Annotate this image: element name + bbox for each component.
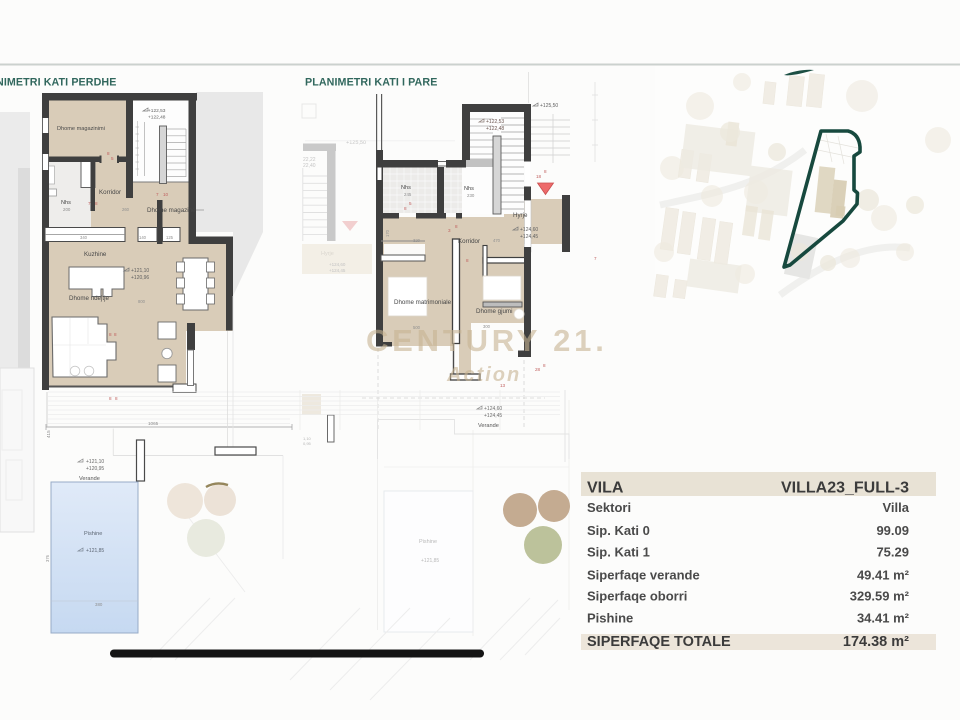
svg-text:+124,45: +124,45 [329, 268, 346, 273]
svg-text:Verande: Verande [79, 476, 100, 482]
svg-text:800: 800 [138, 299, 146, 304]
svg-text:+122,48: +122,48 [148, 115, 166, 121]
svg-text:+125,50: +125,50 [540, 103, 558, 109]
svg-text:+122,53: +122,53 [486, 119, 504, 125]
svg-text:Dhome magazinimi: Dhome magazinimi [57, 126, 105, 132]
svg-text:+124,60: +124,60 [520, 227, 538, 233]
svg-text:+122,48: +122,48 [486, 126, 504, 132]
svg-text:Verande: Verande [478, 423, 499, 429]
svg-text:320: 320 [413, 238, 421, 243]
svg-text:8: 8 [107, 151, 110, 156]
svg-text:5: 5 [409, 201, 412, 206]
svg-text:200: 200 [63, 207, 71, 212]
svg-text:Pishine: Pishine [587, 611, 633, 626]
svg-text:75.29: 75.29 [876, 545, 909, 560]
svg-text:+121,85: +121,85 [86, 548, 104, 554]
svg-text:Nhs: Nhs [464, 186, 474, 192]
svg-text:8: 8 [466, 258, 469, 263]
svg-text:376: 376 [45, 554, 50, 562]
svg-text:+120,96: +120,96 [131, 275, 149, 281]
svg-text:230: 230 [467, 193, 475, 198]
svg-text:Dhome ndejtje: Dhome ndejtje [69, 295, 109, 302]
svg-text:Nhs: Nhs [401, 185, 411, 191]
svg-text:Hyrje: Hyrje [513, 212, 528, 219]
svg-text:VILA: VILA [587, 480, 624, 497]
svg-text:Dhome matrimoniale: Dhome matrimoniale [394, 299, 452, 306]
svg-text:Kuzhine: Kuzhine [84, 251, 107, 258]
svg-text:470: 470 [493, 238, 501, 243]
svg-text:8: 8 [95, 201, 98, 206]
svg-text:Action: Action [446, 364, 521, 386]
svg-text:Sektori: Sektori [587, 500, 631, 515]
svg-text:+121,85: +121,85 [421, 558, 439, 564]
svg-text:Korridor: Korridor [99, 189, 121, 196]
svg-text:SIPERFAQE TOTALE: SIPERFAQE TOTALE [587, 634, 731, 650]
svg-text:Dhome magazinë: Dhome magazinë [147, 207, 196, 214]
svg-text:Siperfaqe oborri: Siperfaqe oborri [587, 589, 687, 604]
svg-text:49.41 m²: 49.41 m² [857, 568, 910, 583]
svg-text:+124,60: +124,60 [484, 406, 502, 412]
svg-text:Korridor: Korridor [458, 238, 480, 245]
svg-text:260: 260 [122, 207, 130, 212]
svg-text:5: 5 [111, 156, 114, 161]
svg-text:3: 3 [448, 228, 451, 233]
svg-text:415: 415 [46, 430, 51, 438]
svg-text:34.41 m²: 34.41 m² [857, 611, 910, 626]
svg-text:8: 8 [543, 363, 546, 368]
svg-text:+124,60: +124,60 [329, 262, 346, 267]
svg-text:22,40: 22,40 [303, 163, 316, 169]
svg-text:7: 7 [594, 256, 597, 261]
svg-text:CENTURY 21.: CENTURY 21. [366, 323, 608, 358]
svg-text:380: 380 [95, 602, 103, 607]
svg-text:Pishine: Pishine [84, 531, 102, 537]
svg-text:Sip. Kati 1: Sip. Kati 1 [587, 545, 650, 560]
svg-text:+122,53: +122,53 [148, 108, 166, 114]
svg-text:99.09: 99.09 [876, 523, 909, 538]
svg-text:28: 28 [535, 367, 541, 372]
svg-text:Pishine: Pishine [419, 539, 437, 545]
svg-text:10: 10 [163, 192, 169, 197]
svg-text:8: 8 [404, 206, 407, 211]
svg-text:NIMETRI KATI PERDHE: NIMETRI KATI PERDHE [0, 77, 116, 89]
svg-text:125: 125 [166, 235, 174, 240]
svg-text:Dhome gjumi: Dhome gjumi [476, 308, 512, 315]
svg-text:8: 8 [109, 332, 112, 337]
svg-text:Siperfaqe verande: Siperfaqe verande [587, 568, 700, 583]
svg-text:245: 245 [404, 192, 412, 197]
svg-text:Nhs: Nhs [61, 200, 71, 206]
svg-text:+124,45: +124,45 [520, 234, 538, 240]
svg-text:170: 170 [385, 229, 390, 237]
svg-text:8: 8 [114, 332, 117, 337]
svg-text:8: 8 [544, 169, 547, 174]
svg-text:1065: 1065 [148, 421, 159, 426]
svg-text:174.38 m²: 174.38 m² [843, 634, 909, 650]
svg-text:8: 8 [455, 224, 458, 229]
svg-text:+120,95: +120,95 [86, 466, 104, 472]
svg-text:+124,45: +124,45 [484, 413, 502, 419]
svg-text:+121,10: +121,10 [131, 268, 149, 274]
svg-text:PLANIMETRI KATI I PARE: PLANIMETRI KATI I PARE [305, 77, 437, 89]
svg-text:18: 18 [536, 174, 542, 179]
svg-text:+121,10: +121,10 [86, 459, 104, 465]
svg-text:7: 7 [156, 192, 159, 197]
svg-text:7: 7 [88, 201, 91, 206]
svg-text:Sip. Kati 0: Sip. Kati 0 [587, 523, 650, 538]
svg-text:0,95: 0,95 [303, 441, 312, 446]
svg-text:340: 340 [80, 235, 88, 240]
svg-text:Villa: Villa [882, 500, 909, 515]
svg-text:329.59 m²: 329.59 m² [850, 589, 910, 604]
svg-text:140: 140 [139, 235, 147, 240]
svg-text:VILLA23_FULL-3: VILLA23_FULL-3 [781, 480, 909, 497]
